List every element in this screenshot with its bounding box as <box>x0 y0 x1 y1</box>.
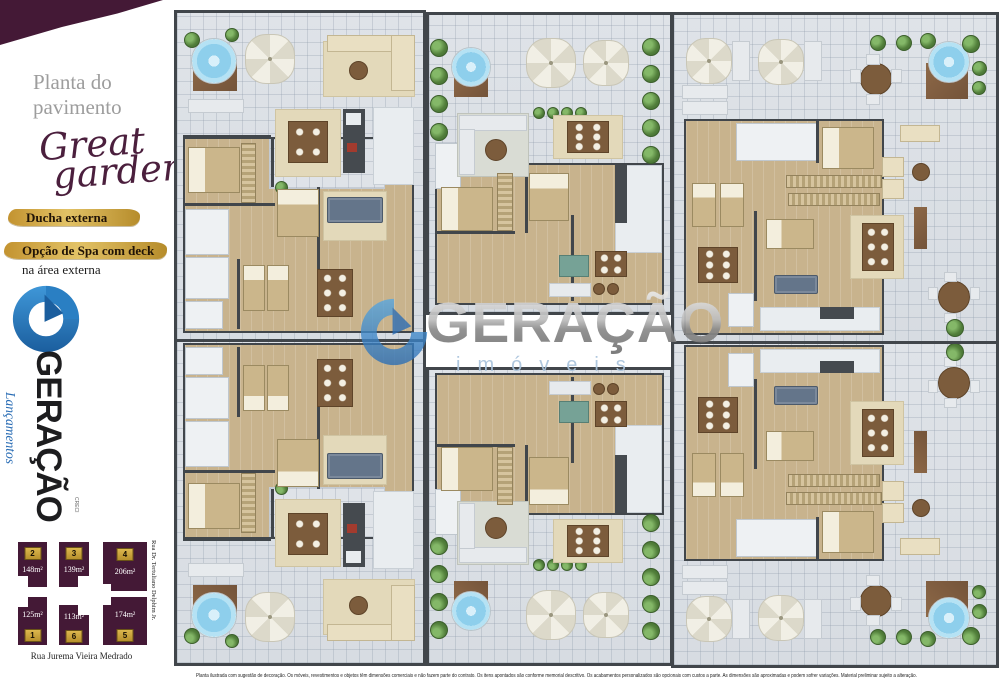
geracao-logo-icon <box>10 283 82 355</box>
coffee-table <box>349 61 368 80</box>
sofa <box>327 197 383 223</box>
bathroom <box>185 301 223 329</box>
floorplan-unit-3 <box>426 12 673 315</box>
brand-logotype: Great garden <box>24 117 179 199</box>
unit-number-badge: 3 <box>66 547 83 560</box>
wardrobe <box>786 175 882 188</box>
feature-ducha: Ducha externa <box>26 210 107 226</box>
unit-number-badge: 1 <box>24 629 41 642</box>
outdoor-round-table <box>938 281 970 313</box>
dining-table <box>595 401 627 427</box>
umbrella-icon <box>758 39 804 85</box>
creci-label: CRECI <box>73 497 79 513</box>
chair <box>891 597 902 611</box>
spa-icon <box>451 47 491 87</box>
plant-icon <box>430 621 448 639</box>
bed <box>529 173 569 221</box>
patio-sofa <box>459 503 475 549</box>
bed <box>822 127 874 169</box>
floorplan-unit-2 <box>174 10 426 345</box>
bathroom <box>185 347 223 375</box>
feature-spa-line2: na área externa <box>22 262 101 278</box>
sun-lounger <box>188 563 244 577</box>
bathroom <box>736 123 818 161</box>
dining-table <box>288 121 328 163</box>
bed <box>243 265 265 311</box>
chair <box>866 54 880 65</box>
chair <box>944 272 957 282</box>
outdoor-round-table <box>860 63 892 95</box>
chair <box>866 615 880 626</box>
dining-table <box>595 251 627 277</box>
bed <box>267 365 289 411</box>
chair <box>928 380 938 393</box>
plant-icon <box>430 67 448 85</box>
bed <box>692 453 716 497</box>
plant-icon <box>533 559 545 571</box>
chair <box>866 94 880 105</box>
floorplan-drawing <box>429 370 670 663</box>
coffee-table <box>349 596 368 615</box>
brand-line2: garden <box>52 146 179 198</box>
floorplan-drawing <box>177 13 423 342</box>
plant-icon <box>946 319 964 337</box>
spa-icon <box>451 591 491 631</box>
floorplan-drawing <box>177 342 423 663</box>
bed <box>720 183 744 227</box>
umbrella-icon <box>758 595 804 641</box>
umbrella-icon <box>686 38 732 84</box>
wardrobe <box>786 492 882 505</box>
floorplan-unit-5 <box>671 341 999 668</box>
keymap-notch <box>103 584 111 592</box>
unit-number-badge: 5 <box>117 629 134 642</box>
street-name-bottom: Rua Jurema Vieira Medrado <box>15 651 148 661</box>
unit-area-label: 148m² <box>18 565 47 574</box>
page-title: Planta do pavimento <box>33 70 158 120</box>
feature-spa-line1: Opção de Spa com deck <box>22 243 154 259</box>
bed <box>720 453 744 497</box>
plant-icon <box>642 65 660 83</box>
disclaimer-text: Planta ilustrada com sugestão de decoraç… <box>196 673 917 679</box>
umbrella-icon <box>583 40 629 86</box>
bed <box>243 365 265 411</box>
stove-icon <box>347 143 357 152</box>
outdoor-sofa <box>549 283 591 297</box>
armchair <box>882 503 904 523</box>
floorplan-drawing <box>674 344 996 665</box>
deck-chair <box>732 41 750 81</box>
chair <box>850 597 861 611</box>
outdoor-round-table <box>860 585 892 617</box>
plant-icon <box>642 541 660 559</box>
sofa <box>774 275 818 294</box>
plant-icon <box>642 595 660 613</box>
bed <box>822 511 874 553</box>
umbrella-icon <box>245 34 295 84</box>
floorplan-drawing <box>429 15 670 312</box>
flyer-page: Planta do pavimento Great garden Ducha e… <box>0 0 1000 689</box>
dining-table <box>698 247 738 283</box>
sun-lounger <box>682 101 728 115</box>
bathroom <box>185 377 229 419</box>
outdoor-sofa <box>391 585 415 641</box>
bed <box>188 483 240 529</box>
deck-chair <box>732 599 750 639</box>
bathroom <box>736 519 818 557</box>
bathroom <box>185 257 229 299</box>
kitchen-counter <box>820 307 854 319</box>
bench <box>914 431 927 473</box>
unit-area-label: 139m² <box>59 565 89 574</box>
plant-icon <box>430 565 448 583</box>
chair <box>850 69 861 83</box>
floorplan-unit-4 <box>671 12 999 347</box>
coffee-table <box>485 139 507 161</box>
plant-icon <box>920 33 936 49</box>
plant-icon <box>430 593 448 611</box>
corner-decoration <box>0 0 163 45</box>
coffee-table <box>912 163 930 181</box>
lancamentos-label: Lançamentos <box>2 392 18 552</box>
plant-icon <box>962 35 980 53</box>
armchair <box>882 157 904 177</box>
plant-icon <box>870 629 886 645</box>
plant-icon <box>184 628 200 644</box>
chair <box>607 283 619 295</box>
bed <box>529 457 569 505</box>
keymap-notch <box>78 576 89 587</box>
bed <box>441 447 493 491</box>
plant-icon <box>184 32 200 48</box>
plant-icon <box>642 38 660 56</box>
unit-area-label: 125m² <box>18 610 47 619</box>
plant-icon <box>225 28 239 42</box>
keymap-notch <box>78 605 89 615</box>
floorplan-unit-1 <box>174 339 426 666</box>
sun-lounger <box>682 565 728 579</box>
plant-icon <box>642 92 660 110</box>
umbrella-icon <box>526 38 576 88</box>
plant-icon <box>430 39 448 57</box>
floorplan-unit-6 <box>426 367 673 666</box>
chair <box>607 383 619 395</box>
chair <box>891 69 902 83</box>
chair <box>944 398 957 408</box>
chair <box>593 283 605 295</box>
plant-icon <box>962 627 980 645</box>
outdoor-dining-table <box>567 525 609 557</box>
unit-area-label: 206m² <box>103 567 147 576</box>
chair <box>970 287 980 300</box>
keymap-notch <box>18 576 28 587</box>
unit-area-label: 174m² <box>103 610 147 619</box>
wardrobe <box>241 143 256 203</box>
patio-sofa <box>459 547 527 563</box>
umbrella-icon <box>686 596 732 642</box>
stove-icon <box>347 524 357 533</box>
outdoor-dining-table <box>862 223 894 271</box>
unit-number-badge: 2 <box>24 547 41 560</box>
kitchen-counter <box>820 361 854 373</box>
outdoor-round-table <box>938 367 970 399</box>
bed <box>766 431 814 461</box>
unit-key-map: 2 148m² 3 139m² 4 206m² 125m² 1 113m² 6 … <box>15 538 148 648</box>
coffee-table <box>912 499 930 517</box>
bathroom <box>185 209 229 255</box>
dining-table <box>317 269 353 317</box>
kitchen-counter <box>615 455 627 513</box>
kitchen-island <box>559 255 589 277</box>
plant-icon <box>642 622 660 640</box>
plant-icon <box>430 123 448 141</box>
wardrobe <box>241 473 256 533</box>
umbrella-icon <box>526 590 576 640</box>
dining-table <box>317 359 353 407</box>
wardrobe <box>497 447 513 505</box>
armchair <box>882 179 904 199</box>
dining-table <box>288 513 328 555</box>
plant-icon <box>972 61 987 76</box>
plant-icon <box>642 514 660 532</box>
outdoor-sofa <box>900 125 940 142</box>
unit-number-badge: 4 <box>117 548 134 561</box>
unit-number-badge: 6 <box>66 630 83 643</box>
floorplan-drawing <box>674 15 996 344</box>
plant-icon <box>430 537 448 555</box>
dining-table <box>698 397 738 433</box>
plant-icon <box>946 343 964 361</box>
plant-icon <box>972 604 987 619</box>
patio-sofa <box>459 129 475 175</box>
outdoor-sofa <box>549 381 591 395</box>
plant-icon <box>920 631 936 647</box>
plant-icon <box>225 634 239 648</box>
bathroom <box>728 293 754 327</box>
sun-lounger <box>682 581 728 595</box>
umbrella-icon <box>245 592 295 642</box>
geracao-wordmark-vertical: GERAÇÃO <box>28 350 68 546</box>
bathroom <box>728 353 754 387</box>
coffee-table <box>485 517 507 539</box>
chair <box>970 380 980 393</box>
sun-lounger <box>188 99 244 113</box>
armchair <box>882 481 904 501</box>
bed <box>766 219 814 249</box>
kitchen-counter <box>615 165 627 223</box>
plant-icon <box>870 35 886 51</box>
bed <box>277 189 319 237</box>
chair <box>928 287 938 300</box>
kitchen-island <box>559 401 589 423</box>
deck-chair <box>804 41 822 81</box>
chair <box>593 383 605 395</box>
chair <box>866 575 880 586</box>
plant-icon <box>430 95 448 113</box>
plant-icon <box>972 81 986 95</box>
sofa <box>327 453 383 479</box>
plant-icon <box>533 107 545 119</box>
bed <box>441 187 493 231</box>
plant-icon <box>972 585 986 599</box>
keymap-notch <box>18 597 28 607</box>
plant-icon <box>642 146 660 164</box>
sun-lounger <box>682 85 728 99</box>
bathroom <box>185 421 229 467</box>
bed <box>692 183 716 227</box>
wardrobe <box>497 173 513 231</box>
bench <box>914 207 927 249</box>
keymap-notch <box>103 597 111 605</box>
plant-icon <box>642 119 660 137</box>
bed <box>277 439 319 487</box>
wardrobe <box>788 193 880 206</box>
bed <box>188 147 240 193</box>
wardrobe <box>788 474 880 487</box>
outdoor-dining-table <box>567 121 609 153</box>
outdoor-sofa <box>391 35 415 91</box>
outdoor-sofa <box>900 538 940 555</box>
deck-chair <box>804 599 822 639</box>
bed <box>267 265 289 311</box>
sofa <box>774 386 818 405</box>
plant-icon <box>896 629 912 645</box>
outdoor-dining-table <box>862 409 894 457</box>
plant-icon <box>896 35 912 51</box>
street-name-right: Rua Dr. Tertuliano Delphim Jr. <box>150 540 157 654</box>
plant-icon <box>642 568 660 586</box>
umbrella-icon <box>583 592 629 638</box>
